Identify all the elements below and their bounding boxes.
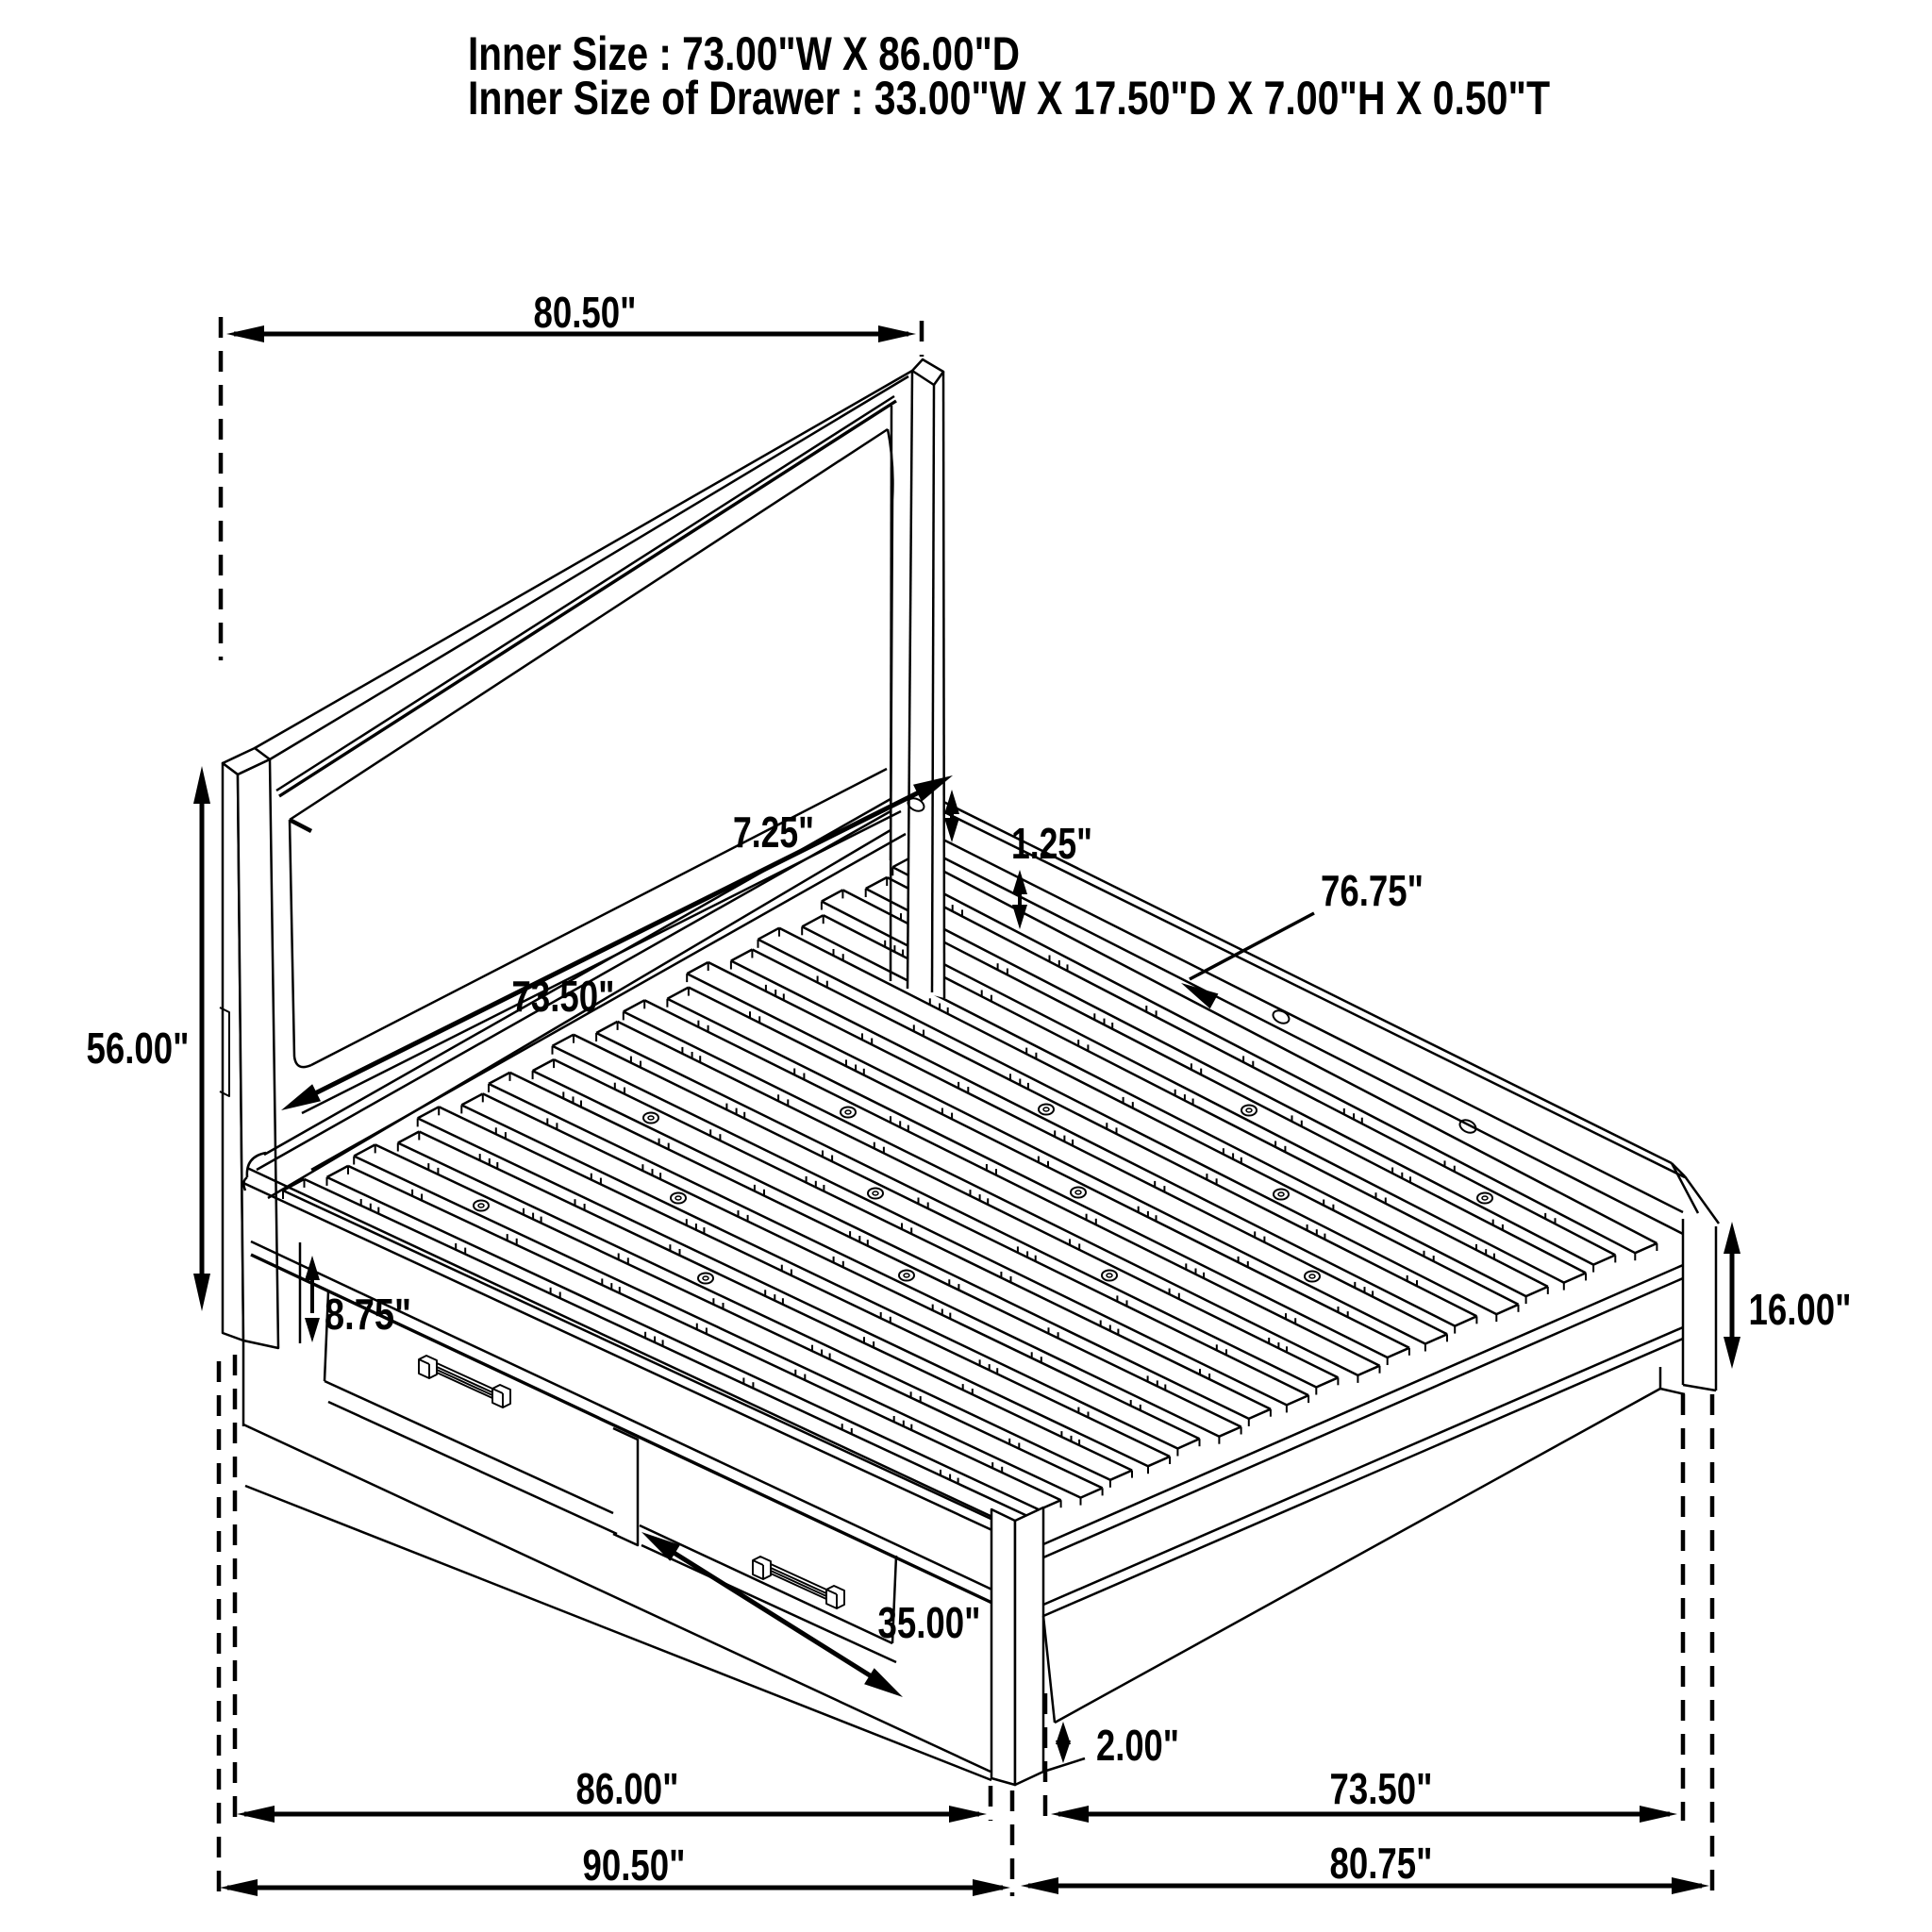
svg-text:2.00": 2.00": [1096, 1721, 1179, 1770]
svg-text:56.00": 56.00": [87, 1024, 190, 1073]
svg-text:8.75": 8.75": [325, 1290, 411, 1339]
svg-text:80.50": 80.50": [534, 288, 637, 337]
svg-text:76.75": 76.75": [1321, 866, 1424, 915]
svg-text:Inner Size of Drawer : 33.00"W: Inner Size of Drawer : 33.00"W X 17.50"D…: [468, 72, 1550, 125]
svg-text:16.00": 16.00": [1749, 1285, 1852, 1334]
svg-text:80.75": 80.75": [1330, 1839, 1433, 1888]
svg-text:1.25": 1.25": [1011, 819, 1092, 868]
svg-text:73.50": 73.50": [1330, 1764, 1433, 1813]
svg-text:35.00": 35.00": [878, 1598, 981, 1647]
svg-text:86.00": 86.00": [576, 1764, 679, 1813]
svg-text:90.50": 90.50": [583, 1840, 686, 1890]
